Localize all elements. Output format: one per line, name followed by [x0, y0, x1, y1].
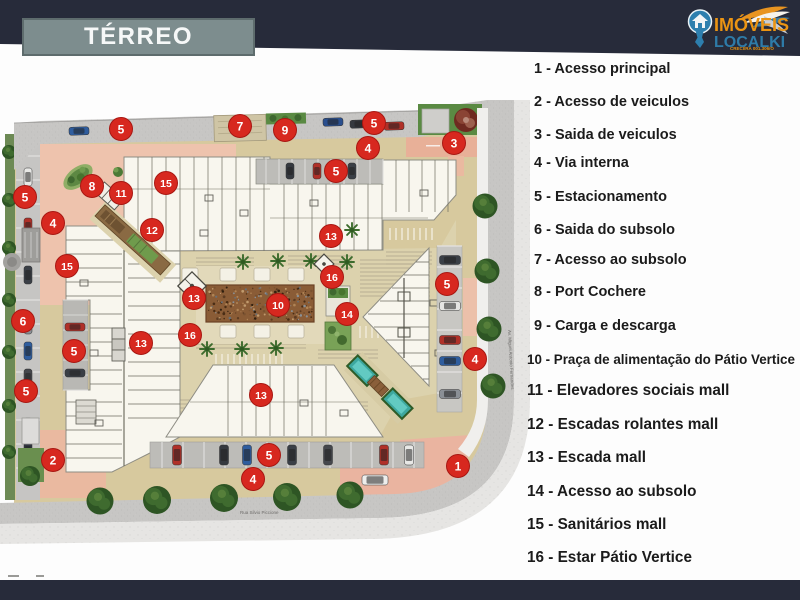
svg-text:11: 11 — [115, 188, 126, 200]
svg-text:5: 5 — [118, 122, 125, 136]
svg-text:2: 2 — [50, 453, 57, 467]
svg-text:6: 6 — [20, 314, 27, 328]
svg-text:7: 7 — [237, 119, 244, 133]
svg-text:4: 4 — [365, 141, 372, 155]
svg-text:8: 8 — [89, 179, 96, 193]
svg-text:1: 1 — [455, 459, 462, 473]
svg-text:14: 14 — [341, 309, 353, 321]
svg-text:4: 4 — [250, 472, 257, 486]
svg-text:16: 16 — [326, 272, 338, 284]
svg-text:15: 15 — [160, 178, 172, 190]
svg-text:13: 13 — [325, 231, 337, 243]
svg-text:3: 3 — [451, 136, 458, 150]
svg-text:15: 15 — [61, 261, 73, 273]
svg-text:5: 5 — [444, 277, 451, 291]
svg-text:4: 4 — [50, 216, 57, 230]
svg-text:12: 12 — [146, 225, 158, 237]
svg-text:CRECI/RA 001.306/O: CRECI/RA 001.306/O — [730, 46, 774, 51]
svg-text:4: 4 — [472, 352, 479, 366]
svg-text:13: 13 — [255, 390, 267, 402]
svg-text:5: 5 — [22, 190, 29, 204]
svg-text:16: 16 — [184, 330, 196, 342]
svg-text:13: 13 — [135, 338, 147, 350]
svg-text:5: 5 — [71, 344, 78, 358]
svg-text:5: 5 — [371, 116, 378, 130]
svg-text:IMÓVEIS: IMÓVEIS — [714, 14, 789, 35]
svg-text:5: 5 — [266, 448, 273, 462]
svg-text:10: 10 — [272, 300, 284, 312]
svg-text:Rua Silvio Piccione: Rua Silvio Piccione — [240, 510, 279, 515]
svg-text:5: 5 — [23, 384, 30, 398]
svg-text:13: 13 — [188, 293, 200, 305]
svg-text:9: 9 — [282, 123, 289, 137]
svg-text:5: 5 — [333, 164, 340, 178]
